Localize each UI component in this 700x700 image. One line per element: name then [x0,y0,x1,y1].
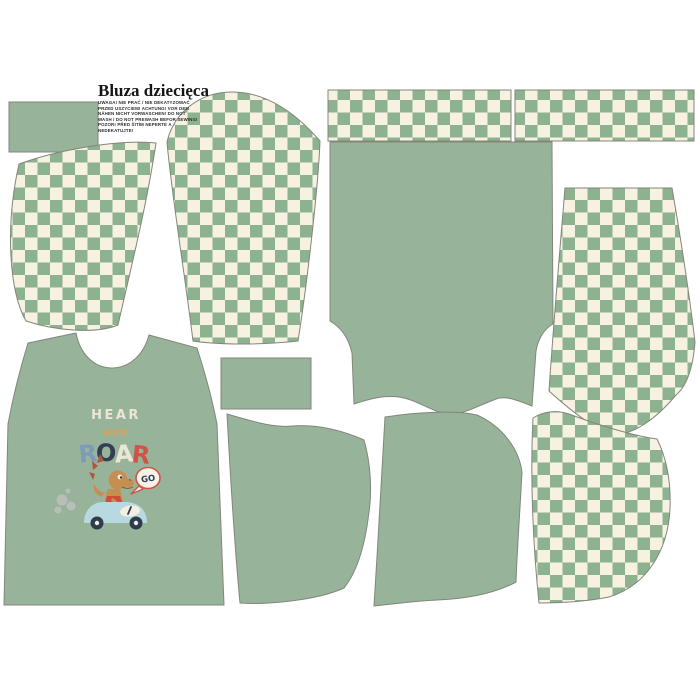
header-block: Bluza dziecięca UWAGA! NIE PRAĆ / NIE DE… [98,82,228,134]
piece-pocket-left [227,414,371,603]
graphic-text-hear: HEAR [91,408,141,423]
piece-front-panel [4,333,224,605]
piece-sleeve-checkered-left [11,142,156,330]
piece-cuff-rect-left [9,102,98,152]
graphic-text-him: HiM [103,428,128,439]
piece-hood-checkered-lower [532,412,670,603]
piece-cuff-rect-center [221,358,311,409]
piece-pocket-right [374,412,522,606]
pattern-sheet: Bluza dziecięca UWAGA! NIE PRAĆ / NIE DE… [0,0,700,700]
page-title: Bluza dziecięca [98,82,228,99]
graphic-text-go: GO [140,474,155,486]
graphic-roar-letter: R [130,440,151,470]
care-instructions: UWAGA! NIE PRAĆ / NIE DEKATYZOWAĆ PRZED … [98,100,228,134]
piece-neckband-strip-1 [328,90,511,141]
piece-neckband-strip-2 [515,90,694,141]
piece-hood-checkered-upper [549,188,695,434]
piece-back-panel [330,142,553,414]
care-line: NEDEKATUJTE! [98,128,228,134]
